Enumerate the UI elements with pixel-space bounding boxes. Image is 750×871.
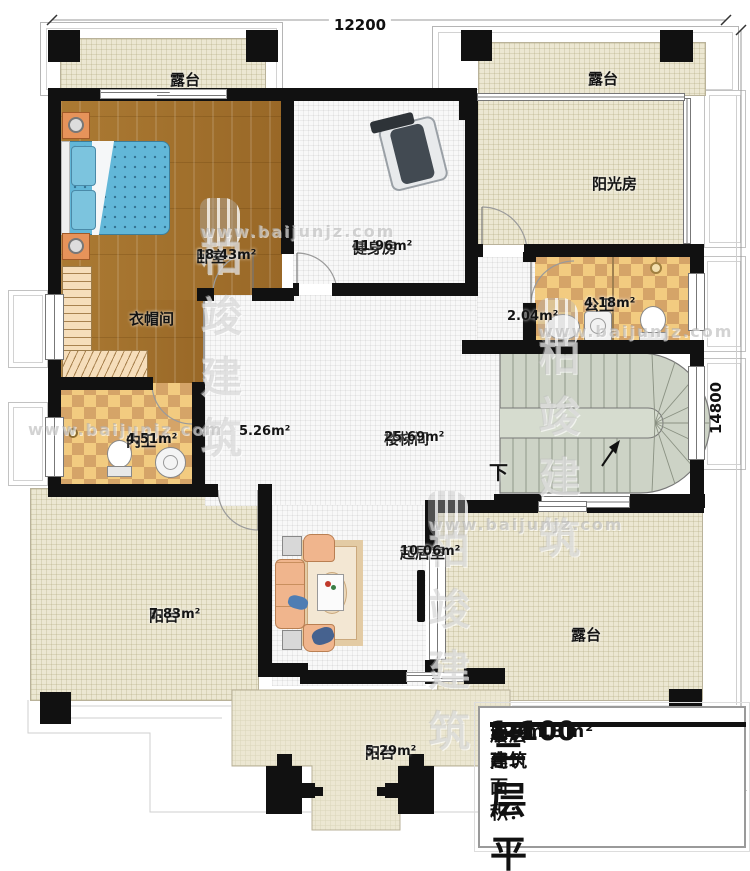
wall bbox=[464, 668, 505, 684]
wall bbox=[300, 670, 407, 684]
wall bbox=[462, 340, 704, 354]
window bbox=[688, 366, 705, 460]
wall bbox=[523, 252, 536, 262]
wall bbox=[281, 100, 294, 254]
wall bbox=[425, 500, 538, 513]
column bbox=[48, 30, 80, 62]
column bbox=[246, 30, 278, 62]
column bbox=[40, 692, 71, 724]
wall bbox=[60, 377, 153, 390]
wall bbox=[48, 88, 61, 296]
wall bbox=[205, 484, 218, 497]
window bbox=[429, 550, 446, 660]
wall bbox=[465, 244, 483, 257]
sunroom-glass-wall bbox=[683, 98, 691, 244]
sliding-door bbox=[406, 672, 464, 682]
window bbox=[688, 273, 705, 331]
wall bbox=[293, 88, 477, 101]
window bbox=[45, 417, 64, 477]
wall bbox=[192, 382, 205, 485]
wall bbox=[690, 353, 704, 366]
sliding-door bbox=[100, 89, 227, 99]
wall bbox=[258, 485, 272, 677]
wall bbox=[332, 283, 477, 296]
wall bbox=[465, 100, 478, 296]
wall bbox=[690, 257, 704, 273]
wall bbox=[459, 88, 477, 120]
wall bbox=[293, 283, 299, 296]
window bbox=[538, 501, 587, 512]
column bbox=[461, 30, 492, 61]
title-block: 三层平面图 1:100 本层建筑面积：124.13m² 层高：3.3m bbox=[478, 706, 746, 848]
wall bbox=[524, 244, 704, 257]
column bbox=[660, 30, 693, 62]
dimension-width: 12200 bbox=[329, 16, 391, 34]
dimension-height: 14800 bbox=[707, 377, 725, 439]
wall bbox=[252, 288, 294, 301]
floor-plan: 柏竣建筑www.baijunjz.com 柏竣建筑www.baijunjz.co… bbox=[0, 0, 750, 871]
wall bbox=[197, 288, 214, 301]
window bbox=[45, 294, 64, 360]
sunroom-glass-wall bbox=[477, 93, 685, 101]
wall bbox=[48, 484, 211, 497]
